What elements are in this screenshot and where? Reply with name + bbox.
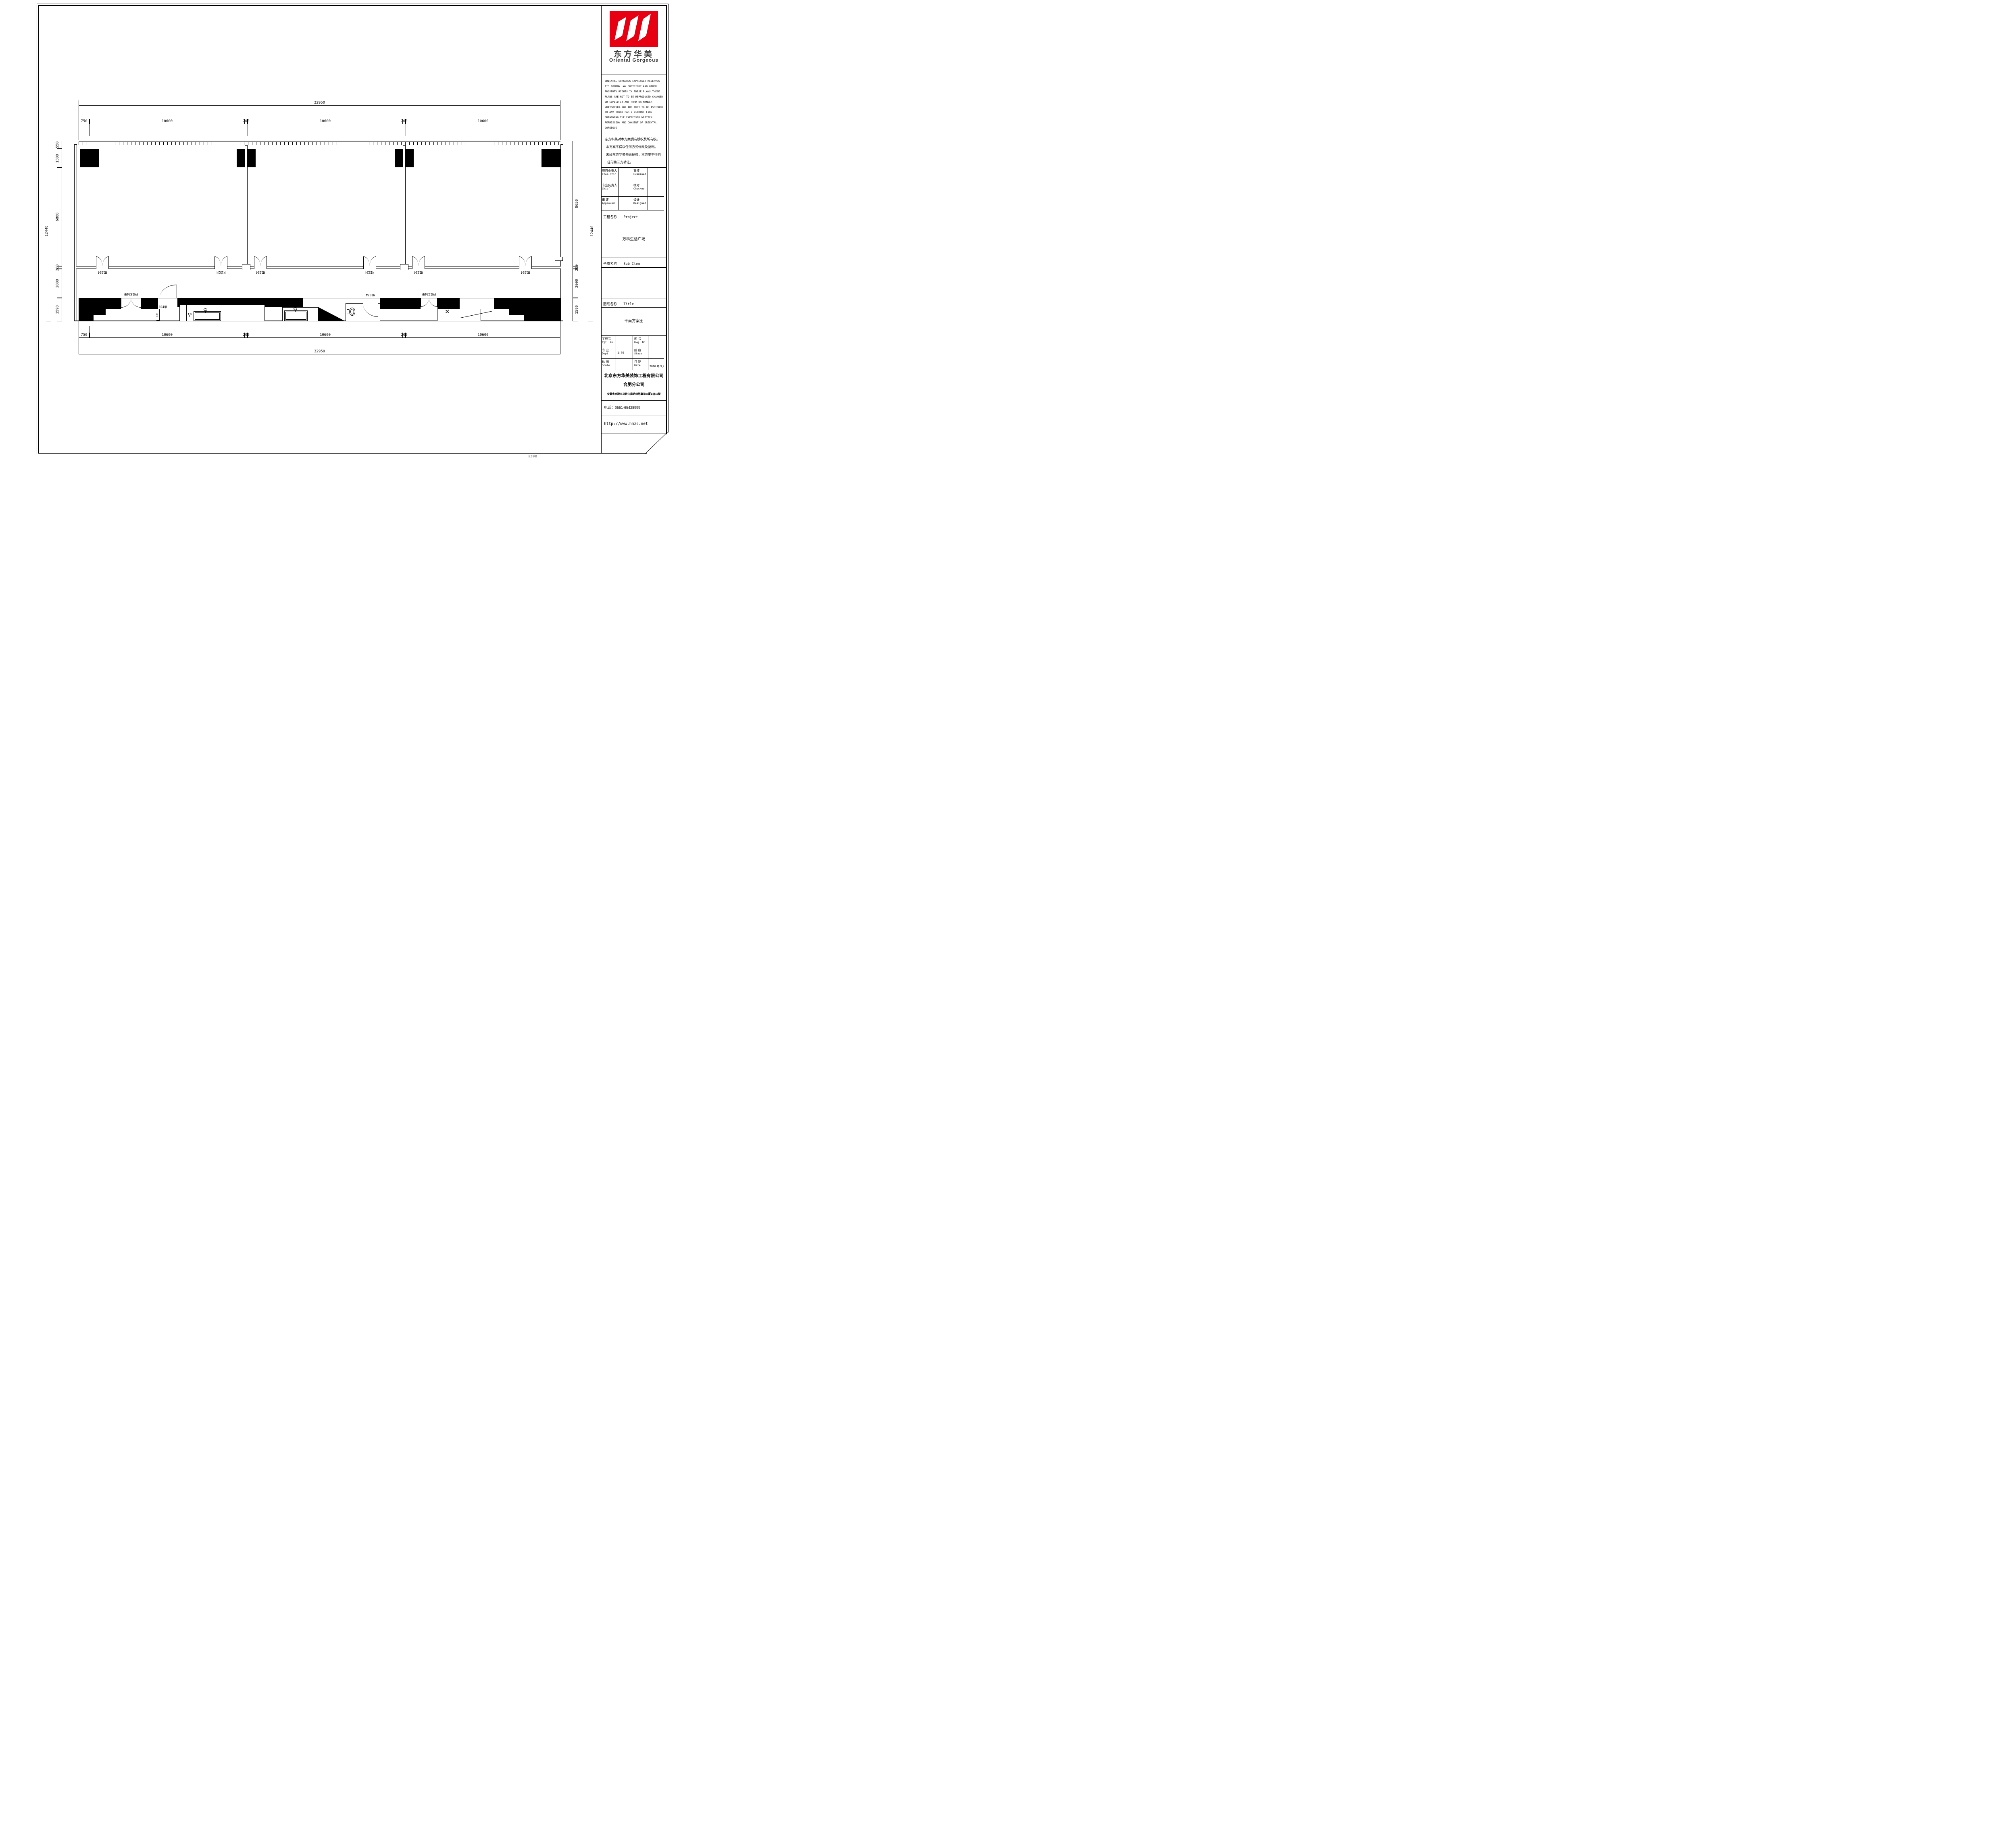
company-address: 安徽省合肥市马鞍山南路绿地赢海大厦B座19楼 <box>601 392 667 396</box>
wall-mass-step <box>79 309 94 321</box>
panel-separator <box>601 258 667 258</box>
ext-line <box>406 124 406 136</box>
project-label-cn: 工程名称 <box>603 215 617 219</box>
vanity-counter <box>284 310 308 321</box>
door-leaf <box>531 256 532 266</box>
dim-bot-0: 750 <box>79 333 90 338</box>
project-label-row: 工程名称 Project <box>603 213 664 220</box>
door-jamb <box>412 266 412 269</box>
dim-right-3: 1590 <box>573 298 578 321</box>
panel-separator <box>601 298 667 298</box>
copyright-english: ORIENTAL GORGEOUS EXPRESSLY RESERVES ITS… <box>605 79 665 131</box>
door-label-m1524: M1524 <box>252 271 269 274</box>
dim-top-2: 200 <box>245 119 248 124</box>
panel-separator <box>601 222 667 222</box>
wall-mass-step <box>524 315 560 321</box>
cell-value <box>648 182 664 197</box>
door-jamb <box>254 266 254 269</box>
door-label-m1524: M1524 <box>361 271 379 274</box>
panel-separator <box>601 416 667 416</box>
door-label-m1524: M1524 <box>94 271 111 274</box>
cell-value <box>619 168 632 182</box>
door-label-fm1224: FM1224甲 <box>420 292 438 296</box>
door-jamb <box>215 266 215 269</box>
ext-line <box>79 321 79 354</box>
door-opening <box>215 266 227 269</box>
door-jamb <box>425 266 425 269</box>
dim-bot-4: 200 <box>403 333 406 338</box>
ext-line <box>245 124 245 136</box>
door-jamb <box>96 266 96 269</box>
door-label-m1524: M1524 <box>516 271 534 274</box>
facade-outer-line <box>79 140 560 140</box>
dim-right-1: 200 <box>573 266 578 269</box>
cell-label: 审核Examined <box>632 168 648 182</box>
copyright-chinese: 东方华美对本方案拥有版权及所有权。 本方案不得以任何方式修改及复制。 未经东方华… <box>605 135 665 166</box>
washroom <box>179 305 265 321</box>
door-opening <box>363 266 376 269</box>
sheet-title-value: 平面方案图 <box>601 318 667 323</box>
logo-stroke <box>626 15 639 41</box>
title-label-en: Title <box>623 302 634 306</box>
door-leaf <box>108 256 109 266</box>
cell-value <box>648 197 664 210</box>
ext-line <box>403 124 403 136</box>
wall-mass-step <box>94 309 106 315</box>
dim-right-total: 12440 <box>588 141 593 321</box>
dim-right-0: 8650 <box>573 141 578 266</box>
door-jamb <box>108 266 109 269</box>
door-jamb <box>363 266 364 269</box>
dim-left-total: 12440 <box>46 141 51 321</box>
wall-mass <box>494 298 560 309</box>
dim-left-4: 2000 <box>57 269 62 298</box>
cell-label: 专 业Dept. <box>601 347 616 359</box>
wall-mass <box>79 298 121 309</box>
cell-label: 比 例Scale <box>601 359 616 370</box>
cell-label: 项目负责人Item.Prin <box>601 168 619 182</box>
door-opening <box>254 266 267 269</box>
door-jamb <box>267 266 267 269</box>
door-jamb <box>376 266 376 269</box>
partition-junction <box>242 264 250 270</box>
right-wall-notch <box>555 257 563 261</box>
door-label-m1024: M1024 <box>363 293 378 297</box>
cell-label: 日 期Date <box>633 359 648 370</box>
door-leaf <box>227 256 227 266</box>
storefront-wall <box>79 142 560 145</box>
cell-value <box>648 168 664 182</box>
wash-basin-icon <box>204 308 207 311</box>
logo-stroke <box>614 17 626 40</box>
dim-top-5: 10600 <box>406 119 560 124</box>
wash-basin-icon <box>188 313 192 315</box>
dim-bot-5: 10600 <box>406 333 560 338</box>
project-name: 万科生活广场 <box>601 236 667 242</box>
right-wall <box>560 144 563 321</box>
partition-wall <box>245 145 248 267</box>
room-partition <box>186 305 187 321</box>
ext-line <box>90 326 90 338</box>
dim-top-total: 32950 <box>79 100 560 106</box>
cell-value <box>648 347 664 359</box>
ext-line <box>245 326 245 338</box>
wall-mass-step <box>509 309 560 315</box>
dim-top-1: 10600 <box>90 119 245 124</box>
dim-top-3: 10600 <box>248 119 403 124</box>
dim-738: 738 <box>156 309 160 321</box>
cell-value-scale: 1:70 <box>616 347 633 359</box>
cell-value <box>616 336 633 347</box>
door-jamb <box>531 266 532 269</box>
door-leaf <box>376 256 376 266</box>
panel-separator <box>601 400 667 401</box>
door-opening <box>96 266 109 269</box>
cell-value <box>619 197 632 210</box>
ext-line <box>403 326 403 338</box>
company-phone: 电话：0551-65428999 <box>604 405 640 410</box>
logo-name-en: Oriental Gorgeous <box>601 57 667 63</box>
cell-label: 图 号Dwg. No. <box>633 336 648 347</box>
cell-value-date: 2016 年 3 月 <box>648 359 664 370</box>
dim-bot-2: 200 <box>245 333 248 338</box>
door-jamb <box>227 266 227 269</box>
subitem-label-row: 子项名称 Sub Item <box>603 260 664 267</box>
personnel-table: 项目负责人Item.Prin 审核Examined 专业负责人Chief 校对C… <box>601 168 664 210</box>
door-opening <box>519 266 532 269</box>
panel-separator <box>601 75 667 75</box>
cell-label: 审 定Approved <box>601 197 619 210</box>
company-logo <box>610 11 658 47</box>
panel-separator <box>601 307 667 308</box>
dim-top-4: 200 <box>403 119 406 124</box>
dim-left-3: 200 <box>57 266 62 269</box>
door-leaf <box>425 256 425 266</box>
dim-bot-3: 10600 <box>248 333 403 338</box>
dim-text: 32950 <box>314 101 325 105</box>
cell-label: 设计Designed <box>632 197 648 210</box>
wall-mass <box>380 298 421 309</box>
partition-junction <box>400 264 408 270</box>
cell-value <box>616 359 633 370</box>
cell-label: 校对Checked <box>632 182 648 197</box>
drawing-sheet: 32950 750 10600 200 10600 200 10600 1244… <box>0 0 670 458</box>
door-opening <box>412 266 425 269</box>
exhaust-fan-icon: ✕ <box>445 309 450 315</box>
dim-bot-1: 10600 <box>90 333 245 338</box>
dim-left-1: 1300 <box>57 149 62 168</box>
cell-label: 专业负责人Chief <box>601 182 619 197</box>
footer-mark: 东方华美 <box>528 455 537 458</box>
title-label-row: 图纸名称 Title <box>603 300 664 307</box>
toilet-icon <box>349 308 355 316</box>
ext-line <box>248 124 248 136</box>
vanity-counter <box>194 311 221 321</box>
ext-line <box>560 106 560 140</box>
column <box>80 149 99 167</box>
door-label-fm1024: FM1024甲 <box>153 305 167 309</box>
cell-label: 阶 段Stage <box>633 347 648 359</box>
cell-label: 工程号Pjt .No. <box>601 336 616 347</box>
cell-value <box>648 336 664 347</box>
subitem-label-en: Sub Item <box>623 262 640 266</box>
ext-line <box>90 124 90 136</box>
interior-front-wall <box>76 266 561 269</box>
dim-right-2: 2000 <box>573 269 578 298</box>
door-label-m1524: M1524 <box>410 271 427 274</box>
logo-stroke <box>638 14 651 41</box>
subitem-label-cn: 子项名称 <box>603 262 617 266</box>
title-label-cn: 图纸名称 <box>603 302 617 306</box>
ext-line <box>79 106 79 140</box>
dim-left-0: 550 <box>57 141 62 149</box>
company-name: 北京东方华美装饰工程有限公司 <box>601 373 667 379</box>
wash-basin-icon <box>294 308 297 310</box>
wall-mass <box>437 298 460 309</box>
ext-line <box>560 321 560 354</box>
cell-value <box>619 182 632 197</box>
dim-left-2: 6800 <box>57 168 62 266</box>
company-branch: 合肥分公司 <box>601 381 667 387</box>
door-leaf <box>267 256 267 266</box>
company-website: http://www.hmzs.net <box>604 422 648 426</box>
partition-wall <box>403 145 406 267</box>
panel-separator <box>601 267 667 268</box>
panel-separator <box>601 433 667 433</box>
left-wall <box>74 144 77 321</box>
project-label-en: Project <box>623 215 638 219</box>
dim-left-5: 1590 <box>57 298 62 321</box>
door-label-fm1524: FM1524甲 <box>122 292 140 296</box>
door-jamb <box>519 266 519 269</box>
column <box>541 149 560 167</box>
info-table: 工程号Pjt .No. 图 号Dwg. No. 专 业Dept. 1:70 阶 … <box>601 336 664 370</box>
dim-top-0: 750 <box>79 119 90 124</box>
dim-bot-total: 32950 <box>79 349 560 354</box>
door-label-m1524: M1524 <box>212 271 230 274</box>
